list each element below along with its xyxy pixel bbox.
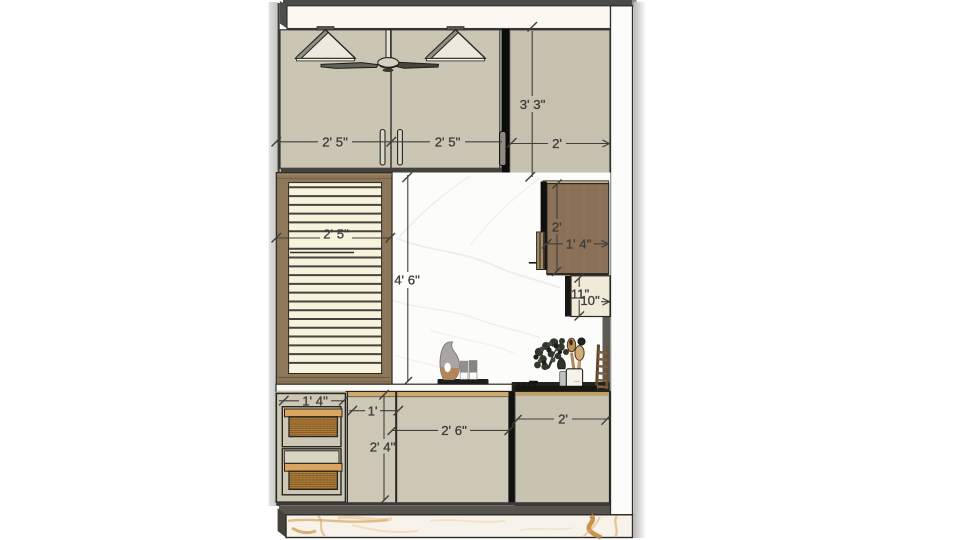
svg-text:2' 5": 2' 5" (323, 227, 349, 242)
svg-text:4' 6": 4' 6" (394, 273, 420, 288)
svg-text:2': 2' (552, 220, 562, 235)
svg-text:1' 4": 1' 4" (566, 236, 592, 251)
svg-text:2' 5": 2' 5" (322, 134, 348, 149)
svg-text:2' 6": 2' 6" (441, 423, 467, 438)
svg-text:3' 3": 3' 3" (520, 97, 546, 112)
svg-text:2': 2' (552, 136, 562, 151)
svg-text:1' 4": 1' 4" (302, 393, 328, 408)
svg-text:2' 5": 2' 5" (435, 134, 461, 149)
svg-text:2': 2' (558, 411, 568, 426)
svg-text:10": 10" (580, 293, 600, 308)
svg-text:2' 4": 2' 4" (370, 439, 396, 454)
svg-text:1': 1' (368, 403, 378, 418)
